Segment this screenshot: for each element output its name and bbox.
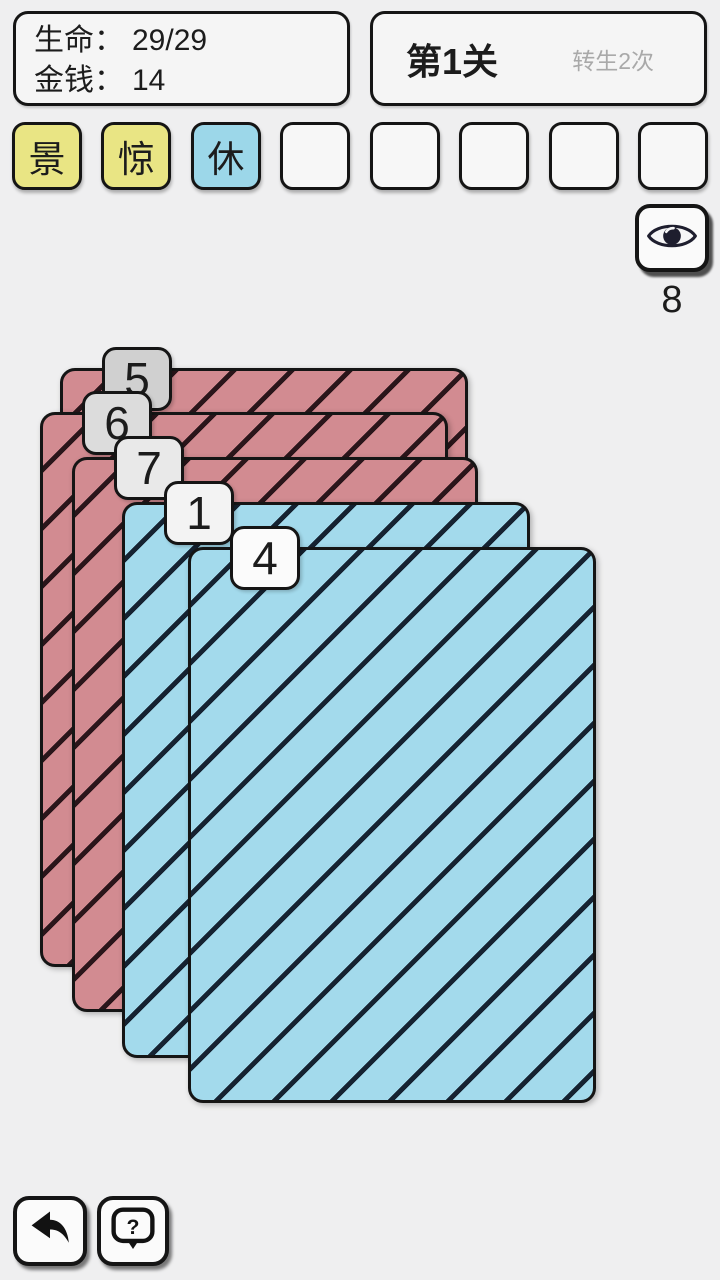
money-value: 14 <box>132 61 165 101</box>
back-arrow-icon <box>26 1206 74 1257</box>
card-tab: 1 <box>164 481 234 545</box>
hand-slot-1[interactable]: 景 <box>12 122 82 190</box>
card-number: 4 <box>252 531 278 585</box>
life-label: 生命： <box>34 21 124 61</box>
level-panel: 第1关 转生2次 <box>370 11 707 106</box>
hand-slot-4[interactable] <box>280 122 350 190</box>
question-bubble-icon: ? <box>108 1204 158 1259</box>
hand-slot-8[interactable] <box>638 122 708 190</box>
money-label: 金钱： <box>34 61 124 101</box>
help-button[interactable]: ? <box>97 1196 169 1266</box>
game-screen: 生命： 29/29 金钱： 14 第1关 转生2次 景 惊 休 8 <box>0 0 720 1280</box>
hand-slot-2[interactable]: 惊 <box>101 122 171 190</box>
card-face <box>188 547 596 1103</box>
rebirth-count: 转生2次 <box>572 42 654 76</box>
slot-label: 休 <box>207 129 244 183</box>
card-4[interactable]: 4 <box>188 547 596 1103</box>
back-button[interactable] <box>13 1196 87 1266</box>
card-tab: 4 <box>230 526 300 590</box>
hand-slot-row: 景 惊 休 <box>12 122 708 190</box>
slot-label: 惊 <box>118 129 155 183</box>
slot-label: 景 <box>29 129 66 183</box>
card-number: 1 <box>186 486 212 540</box>
svg-text:?: ? <box>127 1215 140 1239</box>
card-number: 7 <box>136 441 162 495</box>
life-row: 生命： 29/29 <box>34 21 347 61</box>
hand-slot-7[interactable] <box>549 122 619 190</box>
stats-panel: 生命： 29/29 金钱： 14 <box>13 11 350 106</box>
hand-slot-6[interactable] <box>459 122 529 190</box>
hand-slot-5[interactable] <box>370 122 440 190</box>
eye-button[interactable] <box>635 204 709 272</box>
hand-slot-3[interactable]: 休 <box>191 122 261 190</box>
eye-icon <box>646 217 698 260</box>
money-row: 金钱： 14 <box>34 61 347 101</box>
remaining-cards-count: 8 <box>635 279 709 322</box>
life-value: 29/29 <box>132 21 207 61</box>
level-title: 第1关 <box>406 33 498 85</box>
